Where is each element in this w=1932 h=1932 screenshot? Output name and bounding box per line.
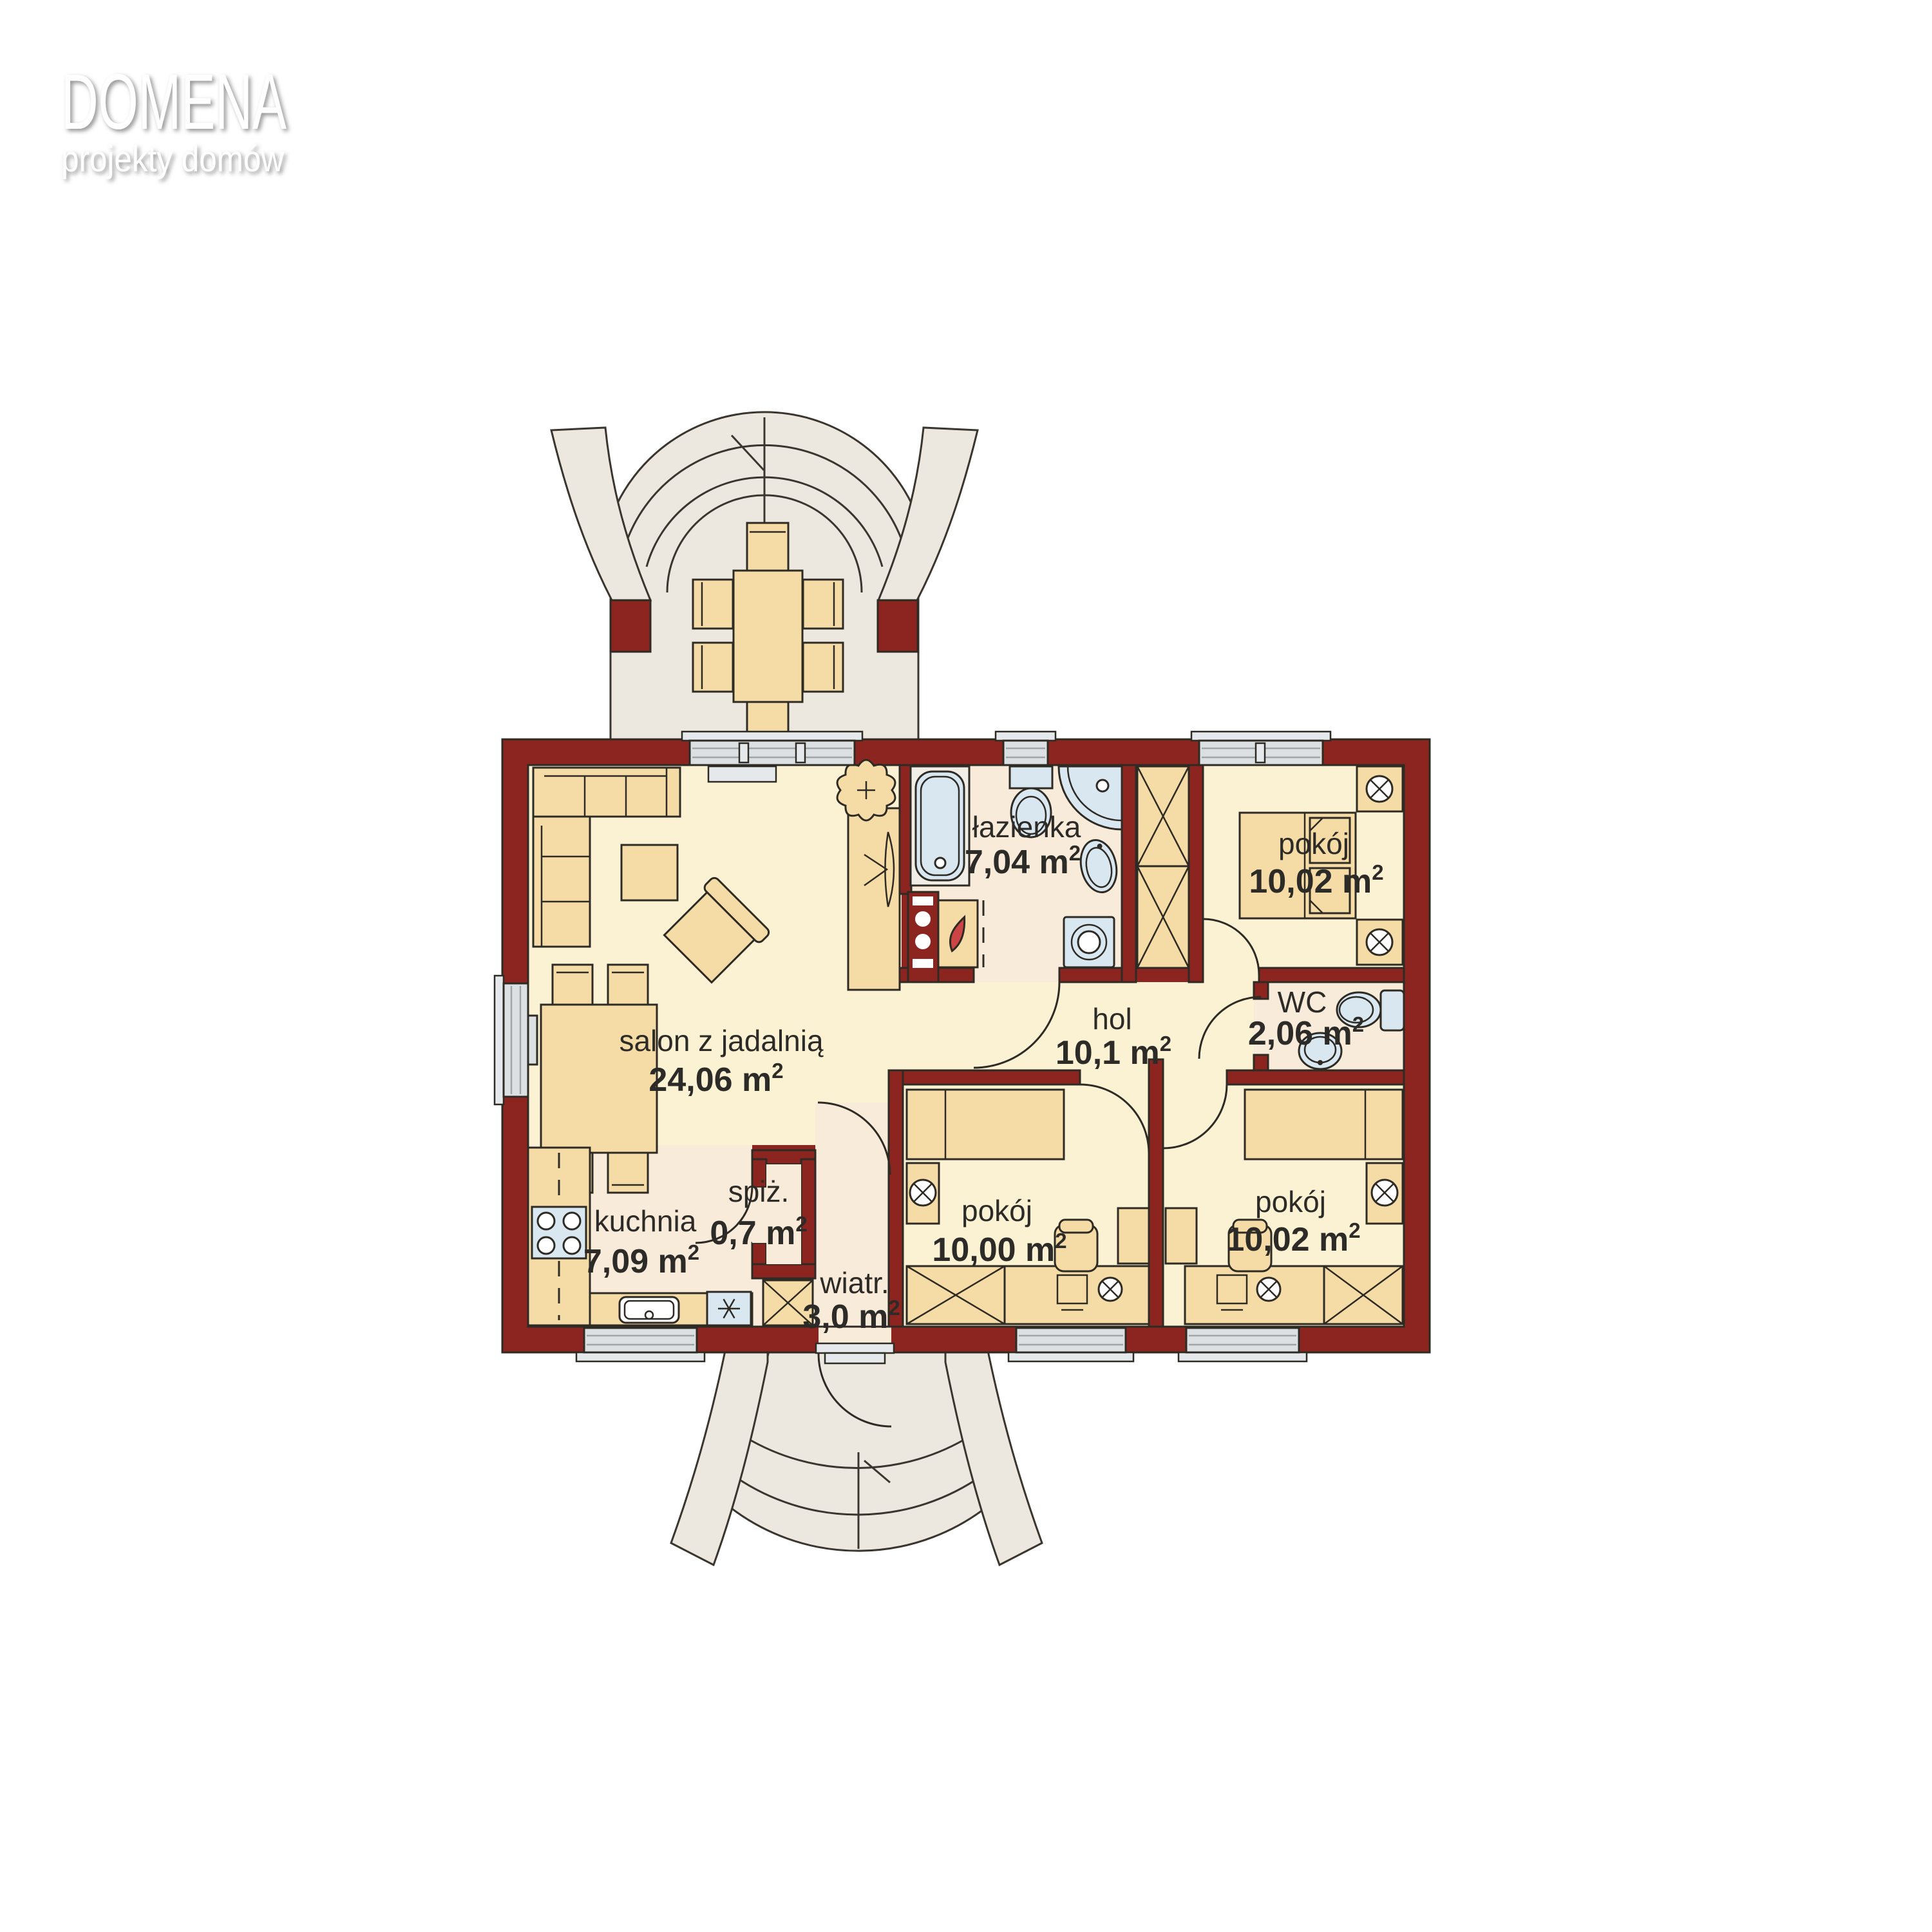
- svg-text:3,0 m2: 3,0 m2: [802, 1296, 900, 1336]
- terrace-top-pillar-left: [611, 600, 650, 652]
- logo-subtitle: projekty domów: [61, 138, 285, 180]
- svg-text:spiż.: spiż.: [728, 1175, 790, 1208]
- single-bed: [1245, 1090, 1403, 1159]
- dining-chair: [553, 965, 592, 1005]
- svg-text:7,04 m2: 7,04 m2: [965, 841, 1081, 881]
- door-gap-pokoj-dolny-srodkowy: [1080, 1070, 1149, 1084]
- window-pokoj-gorny: [1191, 732, 1331, 765]
- plant-icon: [837, 760, 895, 820]
- wall-hol-bottom-left: [889, 1070, 1080, 1084]
- wall-lazienka-right: [1122, 765, 1136, 982]
- floor-plan-page: DOMENA projekty domów: [0, 0, 1932, 1932]
- label-lazienka: łazienka 7,04 m2: [965, 810, 1081, 881]
- window-salon-top: [682, 732, 862, 765]
- chimney-flue-1: [915, 911, 931, 927]
- entrance-door-threshold: [816, 1343, 894, 1363]
- cabinet: [1118, 1208, 1149, 1264]
- hol-wardrobe: [1137, 766, 1189, 968]
- svg-text:hol: hol: [1092, 1002, 1132, 1036]
- terrace-chair: [693, 643, 733, 692]
- wardrobe: [1324, 1266, 1403, 1324]
- wall-pokoj-gorny-left: [1189, 765, 1203, 982]
- terrace-chair: [693, 580, 733, 629]
- svg-text:10,00 m2: 10,00 m2: [932, 1229, 1066, 1269]
- wall-wc-top: [1259, 968, 1404, 982]
- terrace-top-pillar-right: [878, 600, 918, 652]
- hol-door-gap-pokoj: [1203, 968, 1259, 982]
- lamp-icon: [1099, 1278, 1122, 1301]
- dining-chair: [608, 965, 648, 1005]
- svg-text:10,02 m2: 10,02 m2: [1249, 860, 1383, 900]
- svg-text:pokój: pokój: [961, 1194, 1032, 1227]
- lamp-icon: [1367, 776, 1392, 802]
- lamp-icon: [1372, 1180, 1397, 1206]
- terrace-bottom: [671, 1345, 1042, 1565]
- kitchen-sink-icon: [620, 1297, 679, 1323]
- chimney-flue-2: [915, 934, 931, 949]
- terrace-chair: [803, 643, 843, 692]
- washing-machine-icon: [1064, 917, 1114, 967]
- window-pokoj-dolny-srodkowy: [1009, 1328, 1133, 1361]
- terrace-chair: [803, 580, 843, 629]
- stove-icon: [532, 1207, 586, 1258]
- svg-text:pokój: pokój: [1278, 827, 1349, 860]
- radiator: [708, 766, 776, 782]
- terrace-table: [734, 571, 802, 702]
- svg-text:7,09 m2: 7,09 m2: [583, 1240, 699, 1280]
- svg-text:10,1 m2: 10,1 m2: [1056, 1032, 1171, 1072]
- wall-hol-bottom-right: [1227, 1070, 1404, 1084]
- svg-text:10,02 m2: 10,02 m2: [1226, 1218, 1360, 1258]
- svg-text:kuchnia: kuchnia: [594, 1204, 697, 1238]
- svg-text:salon z jadalnią: salon z jadalnią: [619, 1024, 824, 1057]
- dining-chair: [608, 1153, 648, 1193]
- desk: [1185, 1266, 1324, 1324]
- door-gap-lazienka: [974, 968, 1059, 982]
- chimney-vent-top: [913, 896, 933, 905]
- wardrobe: [907, 1266, 1005, 1324]
- wall-salon-lazienka: [900, 765, 911, 894]
- fridge-icon: [707, 1292, 751, 1325]
- svg-text:0,7 m2: 0,7 m2: [710, 1212, 807, 1252]
- single-bed: [907, 1090, 1064, 1159]
- svg-text:2,06 m2: 2,06 m2: [1248, 1012, 1364, 1052]
- wall-wiatrolap-pokoj: [889, 1070, 903, 1327]
- lamp-icon: [1257, 1278, 1280, 1301]
- svg-text:pokój: pokój: [1255, 1185, 1326, 1218]
- svg-text:WC: WC: [1278, 985, 1327, 1019]
- svg-text:wiatr.: wiatr.: [819, 1266, 889, 1300]
- wall-spizarnia-bottom: [752, 1264, 815, 1278]
- svg-text:łazienka: łazienka: [972, 810, 1081, 844]
- svg-text:24,06 m2: 24,06 m2: [649, 1059, 783, 1099]
- lamp-icon: [910, 1180, 936, 1206]
- window-pokoj-dolny-prawy: [1179, 1328, 1307, 1361]
- tv-wall-unit: [848, 808, 900, 990]
- terrace-chair: [747, 523, 788, 571]
- wall-wc-left-stub-bottom: [1254, 1055, 1268, 1070]
- window-lazienka: [996, 732, 1056, 765]
- window-kuchnia: [576, 1328, 705, 1361]
- terrace-top: [551, 412, 978, 750]
- bathtub-icon: [911, 766, 969, 885]
- door-gap-pokoj-dolny-prawy: [1163, 1070, 1227, 1084]
- logo: DOMENA projekty domów: [61, 58, 287, 180]
- chimney-vent-bottom: [913, 959, 933, 968]
- cabinet: [1166, 1208, 1197, 1264]
- logo-title: DOMENA: [61, 58, 287, 146]
- coffee-table: [621, 845, 677, 900]
- lamp-icon: [1367, 929, 1392, 955]
- floor-plan-drawing: DOMENA projekty domów: [0, 0, 1932, 1932]
- wall-between-bottom-rooms: [1149, 1059, 1163, 1327]
